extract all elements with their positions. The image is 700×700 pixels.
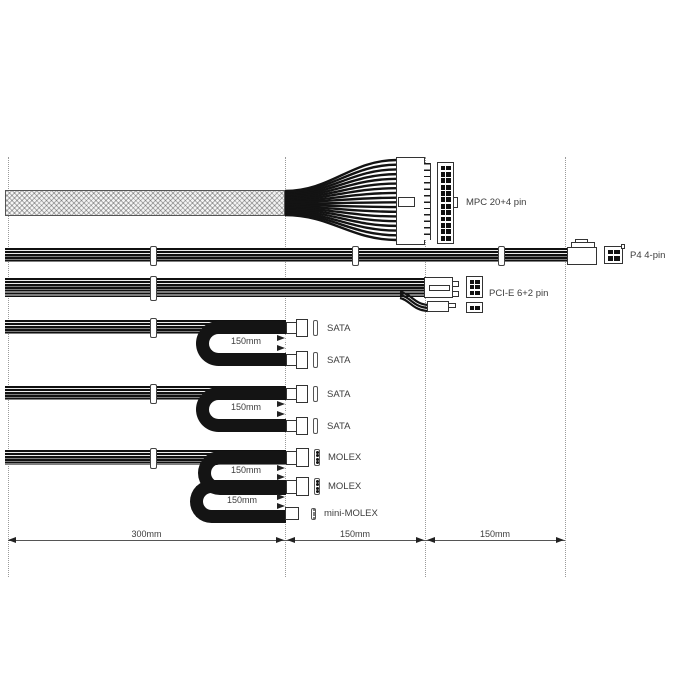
p4-connector-latch-step (575, 239, 588, 243)
sata-label: SATA (327, 324, 350, 334)
sata-connector-front (313, 320, 318, 336)
cable-tie (352, 246, 359, 266)
dim-line-300mm (8, 540, 285, 541)
sata-connector-front (313, 352, 318, 368)
cable-tie (150, 384, 157, 404)
cable-tie (150, 276, 157, 301)
cable-tie (150, 448, 157, 469)
sata1-loop-dim: 150mm (216, 336, 276, 346)
mini-molex-connector-body (285, 507, 299, 520)
pcie-pin-grid-2x3 (466, 276, 483, 298)
mini-molex-connector-front (311, 508, 316, 520)
pcie-connector-latch (429, 285, 450, 291)
molex-connector-body (296, 448, 309, 467)
pcie-cable (5, 278, 424, 297)
pcie-2pin-connector-side (427, 301, 449, 312)
braided-sleeve-cable (5, 190, 285, 216)
mini-molex-label: mini-MOLEX (324, 509, 378, 519)
dim-line-150mm-a (285, 540, 425, 541)
p4-connector-side (567, 247, 597, 265)
sata-connector-front (313, 418, 318, 434)
dim-arrow (277, 345, 285, 351)
molex-loop-dim-2: 150mm (212, 495, 272, 505)
guide-line-600mm (565, 157, 566, 577)
molex-connector-front (314, 449, 320, 466)
pcie-pin-grid-2x1 (466, 302, 483, 313)
dim-arrow (277, 503, 285, 509)
pcie-connector-tab (452, 281, 459, 287)
sata-connector-body (296, 385, 308, 403)
p4-pin-grid-clip (621, 244, 625, 249)
mpc-connector-teeth (424, 163, 431, 240)
sata-connector-body (296, 351, 308, 369)
dim-label-150mm-b: 150mm (425, 529, 565, 539)
mpc-pin-grid-20-4 (437, 162, 454, 244)
molex-connector-front (314, 478, 320, 495)
molex-connector-body (296, 477, 309, 496)
psu-cable-diagram: MPC 20+4 pin P4 4-pin PCI-E 6+2 pin 150m… (0, 0, 700, 700)
mpc-connector-latch (398, 197, 415, 207)
cable-tie (498, 246, 505, 266)
dim-arrow (277, 335, 285, 341)
p4-cable (5, 248, 567, 262)
sata-connector-body (296, 319, 308, 337)
dim-arrow (277, 465, 285, 471)
sata-label: SATA (327, 422, 350, 432)
molex-label: MOLEX (328, 482, 361, 492)
sata-connector-front (313, 386, 318, 402)
dim-arrow (277, 474, 285, 480)
mpc-pin-grid-clip (453, 197, 458, 208)
pcie-label: PCI-E 6+2 pin (489, 289, 548, 299)
sata-connector-body (296, 417, 308, 435)
sata-label: SATA (327, 356, 350, 366)
dim-arrow (277, 401, 285, 407)
cable-tie (150, 318, 157, 338)
dim-arrow (277, 411, 285, 417)
sata-label: SATA (327, 390, 350, 400)
molex-loop-dim-1: 150mm (216, 465, 276, 475)
p4-label: P4 4-pin (630, 251, 665, 261)
dim-arrow (277, 494, 285, 500)
mpc-label: MPC 20+4 pin (466, 198, 526, 208)
molex-label: MOLEX (328, 453, 361, 463)
guide-line-0mm (8, 157, 9, 577)
dim-label-150mm-a: 150mm (285, 529, 425, 539)
dim-label-300mm: 300mm (8, 529, 285, 539)
wire-fan (283, 154, 399, 246)
dim-line-150mm-b (425, 540, 565, 541)
pcie-connector-tab (452, 291, 459, 297)
pcie-2pin-tab (448, 303, 456, 308)
cable-tie (150, 246, 157, 266)
sata2-loop-dim: 150mm (216, 402, 276, 412)
